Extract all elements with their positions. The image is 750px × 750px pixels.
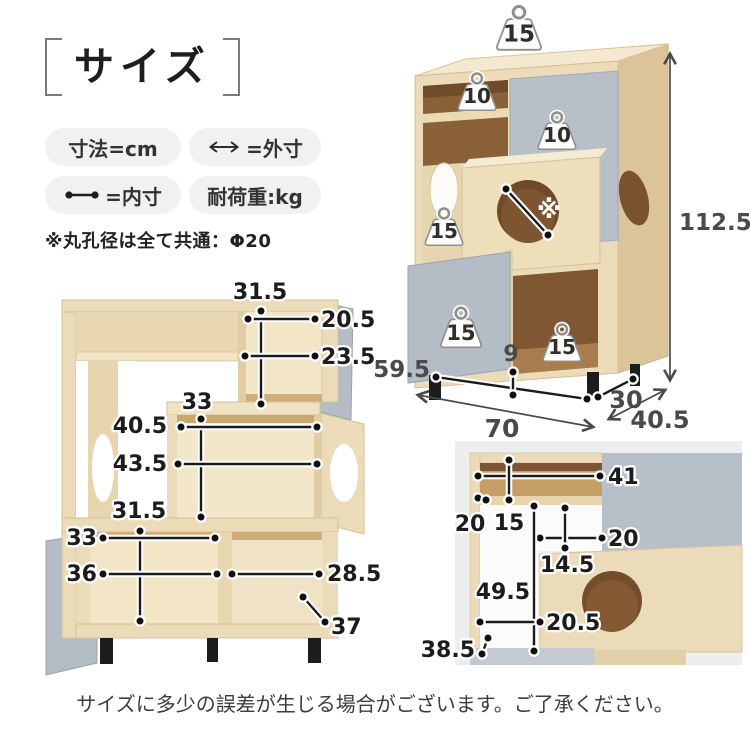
dim-dot (477, 619, 484, 626)
dim-height-label: 112.5 (679, 210, 750, 236)
dim-dot (479, 651, 486, 658)
wood-floor-strip (594, 650, 686, 665)
legend-load-label: 耐荷重:kg (207, 181, 303, 210)
page-title: サイズ (74, 47, 211, 87)
legend-unit-label: 寸法=cm (68, 133, 157, 162)
detail-view: 41 15 20 20 14.5 49.5 20.5 38.5 (450, 435, 750, 670)
dim-dot (312, 316, 319, 323)
size-infographic: サイズ 寸法=cm =外寸 =内寸 (0, 0, 750, 750)
dim-label: 20 (608, 527, 639, 552)
header: サイズ 寸法=cm =外寸 =内寸 (45, 38, 345, 253)
dim-dot (562, 505, 569, 512)
front-view: 31.5 20.5 23.5 33 40.5 43.5 31.5 33 (40, 280, 390, 670)
leg (100, 638, 113, 664)
dim-dot (100, 535, 107, 542)
dim-label: 38.5 (421, 638, 475, 663)
weight-shelf-value: 10 (463, 84, 491, 108)
dim-label: 49.5 (476, 580, 530, 605)
weight-bottom-door-value: 15 (446, 321, 475, 345)
dim-label: 36 (66, 562, 97, 587)
side-oval-hole (92, 434, 114, 502)
dim-dot (545, 232, 552, 239)
dim-label: 15 (494, 511, 525, 536)
dim-dot (214, 571, 221, 578)
dim-label: 40.5 (113, 414, 167, 439)
dim-dot (212, 535, 219, 542)
dim-label: 14.5 (540, 553, 594, 578)
dim-dot (433, 374, 440, 381)
legend-load-badge: 耐荷重:kg (189, 176, 321, 214)
top-rail (470, 453, 602, 463)
dim-label: 43.5 (113, 452, 167, 477)
legend-inner-badge: =内寸 (45, 176, 181, 214)
dim-dot (137, 528, 144, 535)
dim-dot (258, 401, 265, 408)
dim-dot (475, 473, 482, 480)
dim-dot (100, 571, 107, 578)
dim-dot (314, 461, 321, 468)
dim-dot (506, 457, 513, 464)
shelf-board (76, 352, 238, 361)
leg (308, 638, 321, 663)
dim-label: 28.5 (327, 562, 381, 587)
weight-top-value: 15 (503, 22, 535, 48)
dim-dot (245, 316, 252, 323)
weight-door-value: 10 (543, 123, 571, 147)
dim-label: 33 (182, 390, 213, 415)
weight-cube-value: 15 (548, 335, 576, 359)
dim-label: 23.5 (321, 345, 375, 370)
dim-dot (510, 369, 517, 376)
bracket-left-icon (45, 38, 62, 96)
dim-label: 31.5 (112, 499, 166, 524)
dim-dot (483, 497, 490, 504)
door-round-hole (330, 444, 358, 502)
dim-height: 112.5 (670, 54, 750, 380)
weight-top: 15 (497, 6, 541, 49)
dim-dot (316, 571, 323, 578)
dim-dot (175, 461, 182, 468)
dim-dot (229, 571, 236, 578)
hole-diameter-note: ※丸孔径は全て共通：Φ20 (45, 227, 345, 253)
dim-dot (198, 416, 205, 423)
legend-outer-label: =外寸 (246, 133, 303, 162)
shelf-edge (480, 496, 602, 505)
left-stile (62, 300, 76, 638)
dim-dot (562, 545, 569, 552)
dim-dot (242, 353, 249, 360)
dim-dot (630, 376, 637, 383)
legend: 寸法=cm =外寸 =内寸 耐荷重:kg (45, 128, 345, 214)
legend-inner-label: =内寸 (105, 181, 162, 210)
dim-dot (537, 535, 544, 542)
leg (207, 638, 218, 662)
top-board (62, 300, 338, 312)
dim-label: 31.5 (233, 280, 287, 305)
bracket-right-icon (223, 38, 240, 96)
hole-reference-mark: ※ (537, 195, 561, 224)
dim-dot (300, 594, 307, 601)
double-arrow-icon (207, 140, 241, 154)
dim-dot (595, 394, 602, 401)
dim-label: 20 (455, 512, 486, 537)
title-block: サイズ (45, 38, 345, 96)
top-left-interior (76, 312, 238, 352)
dim-dot (537, 619, 544, 626)
bottom-left-interior (90, 532, 218, 624)
dim-label: 37 (331, 615, 362, 640)
dim-depth-label: 40.5 (630, 406, 689, 434)
bottom-right-interior (232, 532, 322, 624)
dim-dot (503, 186, 510, 193)
tolerance-note: サイズに多少の誤差が生じる場合がございます。ご了承ください。 (0, 688, 750, 717)
dim-dot (314, 424, 321, 431)
dim-dot (597, 473, 604, 480)
dim-dot (312, 353, 319, 360)
dim-dot (531, 648, 538, 655)
weight-left-value: 15 (430, 219, 458, 243)
dim-leg-height-label: 9 (503, 342, 518, 367)
bottom-right-shadow (232, 532, 322, 540)
dim-label: 41 (608, 465, 639, 490)
dim-dot (258, 308, 265, 315)
legend-outer-badge: =外寸 (189, 128, 321, 166)
dim-dot (599, 535, 606, 542)
dim-dot (506, 497, 513, 504)
dim-dot (322, 619, 329, 626)
dim-dot (485, 635, 492, 642)
dim-dot (584, 396, 591, 403)
dim-dot (531, 503, 538, 510)
legend-unit-badge: 寸法=cm (45, 128, 181, 166)
dim-label: 20.5 (321, 308, 375, 333)
dim-dot (510, 392, 517, 399)
shelf-shadow (480, 463, 602, 471)
dim-dot (137, 618, 144, 625)
dim-dot (198, 514, 205, 521)
dot-line-icon (64, 189, 100, 201)
bottom-board (76, 624, 338, 638)
dim-dot (178, 424, 185, 431)
dim-label: 20.5 (546, 611, 600, 636)
dim-label: 33 (66, 526, 97, 551)
